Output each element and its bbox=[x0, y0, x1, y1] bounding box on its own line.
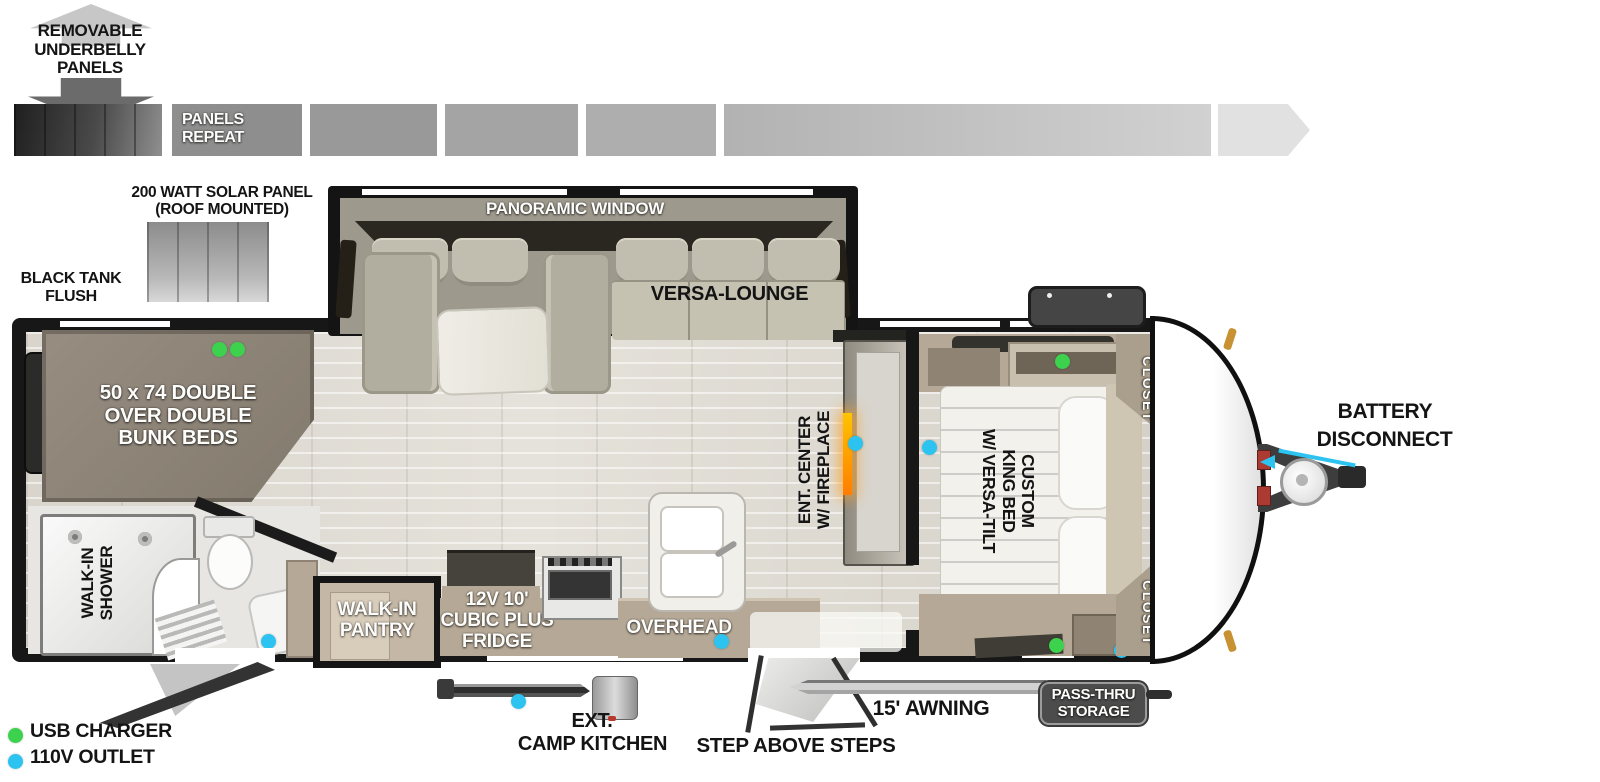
dinette-seat-right bbox=[543, 252, 611, 394]
rv-floorplan-diagram: REMOVABLE UNDERBELLY PANELS PANELS REPEA… bbox=[0, 0, 1600, 782]
underbelly-panel-segment bbox=[310, 104, 437, 156]
rear-door-opening bbox=[175, 648, 275, 662]
slideout-window-slit bbox=[620, 189, 813, 195]
tongue-jack-hub bbox=[1296, 474, 1308, 486]
toilet-bowl bbox=[207, 534, 253, 590]
pass-thru-handle bbox=[1146, 690, 1172, 699]
stove-knobs bbox=[548, 558, 612, 566]
roof-rack-rivet bbox=[1107, 293, 1112, 298]
roof-rack-box bbox=[1028, 286, 1146, 328]
battery-disconnect-arrowhead-icon bbox=[1260, 455, 1275, 469]
bedroom-cabinet-opening bbox=[928, 348, 1000, 386]
underbelly-panel-segment-repeat: PANELS REPEAT bbox=[172, 104, 302, 156]
underbelly-panel-segment-long bbox=[724, 104, 1211, 156]
step-above-steps-label: STEP ABOVE STEPS bbox=[690, 735, 902, 758]
camp-kitchen-label2: CAMP KITCHEN bbox=[505, 733, 680, 755]
usb-charger-legend-label: USB CHARGER bbox=[30, 721, 250, 742]
solar-panel-label: 200 WATT SOLAR PANEL (ROOF MOUNTED) bbox=[114, 184, 330, 218]
fireplace-icon bbox=[843, 413, 852, 495]
entry-mat bbox=[750, 612, 902, 652]
sofa-cushion bbox=[692, 238, 764, 286]
bedroom-divider-wall bbox=[906, 630, 919, 662]
bunk-bed-label: 50 x 74 DOUBLE OVER DOUBLE BUNK BEDS bbox=[68, 382, 288, 450]
sofa-cushion bbox=[768, 238, 840, 286]
camp-kitchen-label: EXT. bbox=[532, 710, 652, 732]
wall-window-slit bbox=[60, 321, 170, 327]
battery-disconnect-label2: DISCONNECT bbox=[1282, 428, 1487, 451]
outlet-110v-legend-label: 110V OUTLET bbox=[30, 747, 250, 768]
stove-burners bbox=[548, 570, 612, 600]
outlet-110v-dot bbox=[848, 436, 863, 451]
battery-box bbox=[1257, 486, 1271, 506]
sink-basin bbox=[660, 506, 724, 552]
underbelly-panel-segment-dark bbox=[14, 104, 162, 156]
slideout-window-slit bbox=[362, 189, 567, 195]
ent-center-tv-panel bbox=[856, 352, 900, 552]
outlet-110v-dot bbox=[714, 634, 729, 649]
versa-lounge-label: VERSA-LOUNGE bbox=[622, 283, 837, 305]
underbelly-panel-segment bbox=[445, 104, 578, 156]
usb-charger-dot bbox=[1055, 354, 1070, 369]
outlet-110v-dot bbox=[511, 694, 526, 709]
outlet-110v-dot bbox=[922, 440, 937, 455]
wall-window-slit bbox=[880, 321, 1000, 327]
usb-charger-dot bbox=[212, 342, 227, 357]
black-tank-flush-label: BLACK TANK FLUSH bbox=[6, 270, 136, 305]
front-cap bbox=[1150, 316, 1266, 664]
dinette-table bbox=[436, 306, 551, 396]
outlet-110v-legend-dot bbox=[8, 754, 23, 769]
clearance-light-icon bbox=[1223, 327, 1237, 350]
dinette-seat-left bbox=[362, 252, 440, 394]
bedroom-divider-wall bbox=[906, 330, 919, 565]
entry-step-base bbox=[770, 722, 865, 730]
sofa-cushion bbox=[616, 238, 688, 286]
clearance-light-icon bbox=[1223, 629, 1237, 652]
solar-panel-graphic bbox=[147, 222, 269, 302]
pass-thru-label: PASS-THRU STORAGE bbox=[1040, 687, 1147, 720]
fridge bbox=[447, 550, 535, 589]
shower-drain-icon bbox=[138, 532, 152, 546]
king-bed-label: CUSTOM KING BED W/ VERSA-TILT bbox=[975, 401, 1041, 581]
underbelly-panel-arrow-icon bbox=[1218, 104, 1310, 156]
panoramic-window-label: PANORAMIC WINDOW bbox=[420, 200, 730, 219]
camp-kitchen-mount bbox=[437, 679, 454, 699]
battery-disconnect-label: BATTERY bbox=[1300, 400, 1470, 423]
underbelly-note: REMOVABLE UNDERBELLY PANELS bbox=[10, 22, 170, 78]
walk-in-shower-label: WALK-IN SHOWER bbox=[77, 518, 119, 648]
walk-in-pantry-label: WALK-IN PANTRY bbox=[316, 600, 438, 642]
sink-basin bbox=[660, 552, 724, 598]
ent-center-label: ENT. CENTER W/ FIREPLACE bbox=[795, 375, 835, 565]
usb-charger-legend-dot bbox=[8, 728, 23, 743]
outlet-110v-dot bbox=[261, 634, 276, 649]
sofa-cushion bbox=[452, 238, 528, 286]
hitch-coupler bbox=[1338, 466, 1366, 488]
usb-charger-dot bbox=[1049, 638, 1064, 653]
usb-charger-dot bbox=[230, 342, 245, 357]
underbelly-panel-segment bbox=[586, 104, 716, 156]
roof-rack-rivet bbox=[1047, 293, 1052, 298]
panels-repeat-label: PANELS REPEAT bbox=[182, 111, 292, 146]
awning-label: 15' AWNING bbox=[856, 697, 1006, 720]
bedroom-mirror-slot bbox=[1016, 352, 1124, 374]
awning-bar bbox=[790, 680, 1046, 694]
